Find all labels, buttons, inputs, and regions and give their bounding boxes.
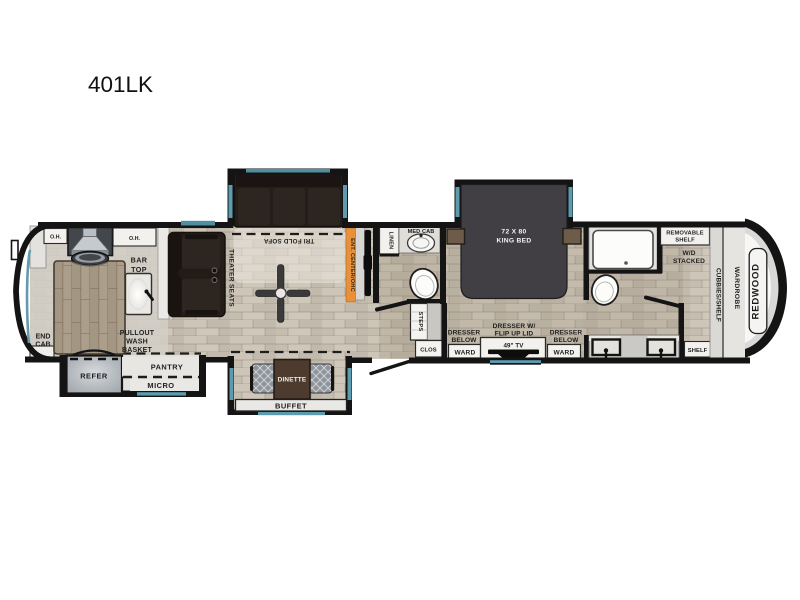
svg-text:KING BED: KING BED <box>496 238 531 245</box>
svg-text:TOP: TOP <box>131 265 147 274</box>
svg-text:END: END <box>36 334 51 341</box>
svg-text:STEPS: STEPS <box>417 311 423 331</box>
svg-text:STACKED: STACKED <box>673 258 705 265</box>
svg-text:FLIP UP LID: FLIP UP LID <box>495 331 534 338</box>
svg-text:CAB: CAB <box>35 342 50 349</box>
svg-text:SHELF: SHELF <box>675 238 695 244</box>
svg-text:49" TV: 49" TV <box>503 343 524 350</box>
svg-text:BASKET: BASKET <box>122 347 153 354</box>
svg-text:PANTRY: PANTRY <box>151 363 184 372</box>
svg-text:CUBBIES/SHELF: CUBBIES/SHELF <box>715 268 722 322</box>
svg-text:DINETTE: DINETTE <box>278 377 307 384</box>
svg-text:REFER: REFER <box>80 372 108 381</box>
svg-text:REDWOOD: REDWOOD <box>750 263 761 319</box>
svg-text:WARDROBE: WARDROBE <box>733 267 740 310</box>
svg-text:O.H.: O.H. <box>129 236 141 242</box>
svg-text:PULLOUT: PULLOUT <box>120 330 155 337</box>
svg-text:DRESSER: DRESSER <box>550 330 583 337</box>
svg-text:DRESSER: DRESSER <box>448 330 481 337</box>
svg-text:DRESSER W/: DRESSER W/ <box>493 323 536 330</box>
svg-text:401LK: 401LK <box>88 72 153 97</box>
svg-text:TRI FOLD SOFA: TRI FOLD SOFA <box>263 237 314 244</box>
svg-text:ENT. CENTER/OHC: ENT. CENTER/OHC <box>349 238 355 292</box>
svg-text:72 X 80: 72 X 80 <box>501 229 526 236</box>
svg-text:SHELF: SHELF <box>688 348 708 354</box>
svg-text:MICRO: MICRO <box>147 381 174 390</box>
svg-text:WASH: WASH <box>126 339 148 346</box>
svg-text:CLOS: CLOS <box>420 348 437 354</box>
svg-text:BAR: BAR <box>131 256 148 265</box>
svg-text:BELOW: BELOW <box>451 337 477 344</box>
svg-text:WARD: WARD <box>554 350 575 357</box>
svg-text:O.H.: O.H. <box>50 235 62 241</box>
svg-text:THEATER SEATS: THEATER SEATS <box>228 249 235 307</box>
svg-text:W/D: W/D <box>682 250 695 257</box>
svg-text:LINEN: LINEN <box>388 232 394 250</box>
svg-text:BUFFET: BUFFET <box>275 402 307 411</box>
svg-text:BELOW: BELOW <box>553 337 579 344</box>
svg-text:WARD: WARD <box>455 350 476 357</box>
svg-text:REMOVABLE: REMOVABLE <box>666 231 704 237</box>
